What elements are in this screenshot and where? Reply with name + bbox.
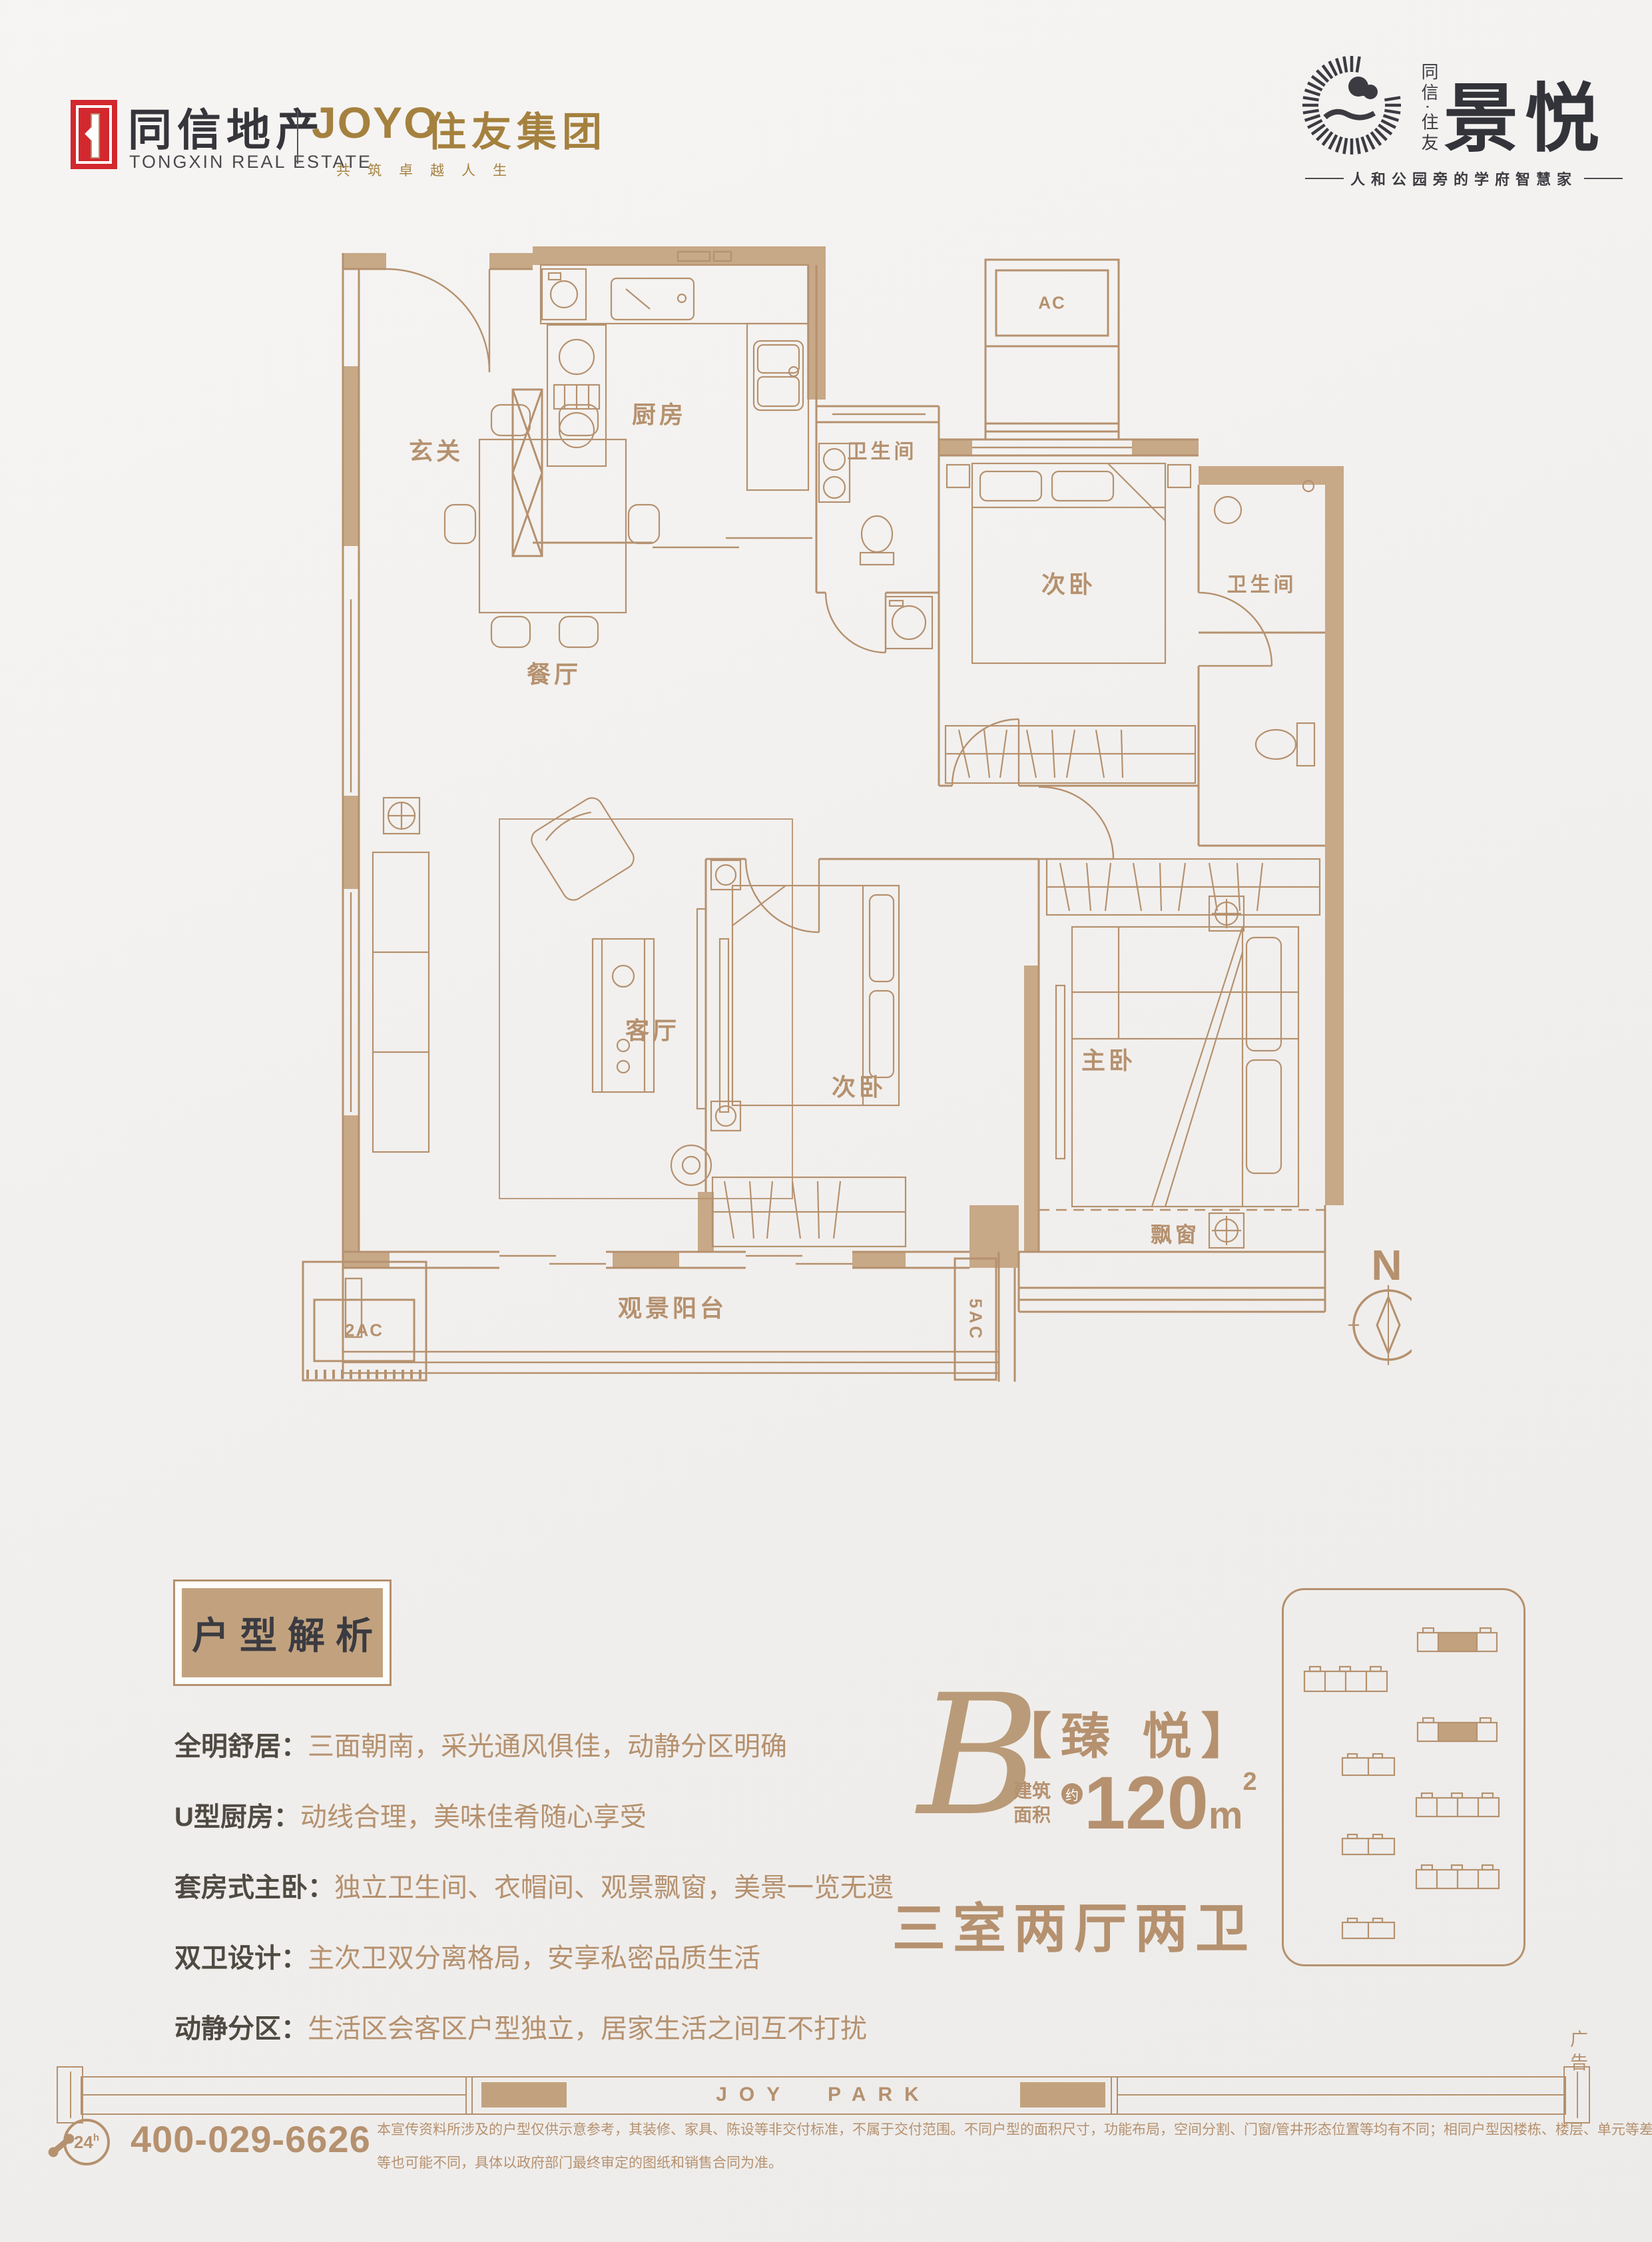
ad-vertical-label: 广告 [1565, 2030, 1591, 2076]
unit-approx-badge: 约 [1061, 1783, 1083, 1805]
building-highlighted [1418, 1628, 1497, 1651]
room-label-entry: 玄关 [409, 432, 463, 467]
furniture [373, 252, 1412, 1365]
scalebar-block-right [1020, 2082, 1105, 2107]
analysis-item-text: 独立卫生间、衣帽间、观景飘窗，美景一览无遗 [334, 1873, 894, 1902]
tagline-line-right [1584, 178, 1623, 179]
analysis-item: 动静分区：生活区会客区户型独立，居家生活之间互不打扰 [174, 2007, 867, 2046]
building-outline [1342, 1754, 1394, 1775]
analysis-item-label: 全明舒居： [174, 1732, 308, 1761]
analysis-item: 双卫设计：主次卫双分离格局，安享私密品质生活 [174, 1936, 760, 1975]
area-superscript: 2 [1242, 1768, 1256, 1796]
phone-24h-badge: 24h [63, 2119, 110, 2165]
building-outline [1416, 1865, 1499, 1888]
analysis-title: 户型解析 [192, 1606, 384, 1660]
unit-name: 【臻 悦】 [1002, 1697, 1260, 1768]
unit-layout: 三室两厅两卫 [892, 1886, 1256, 1963]
ac-label-right: 5AC [965, 1298, 986, 1341]
room-label-bedroom2-mid: 次卧 [832, 1068, 886, 1103]
area-number: 120 [1084, 1761, 1209, 1844]
building-outline [1342, 1918, 1394, 1938]
floorplan: 玄关 厨房 卫生间 次卧 卫生间 餐厅 客厅 次卧 主卧 飘窗 观景阳台 AC … [280, 220, 1412, 1445]
partner-name-cn: 住友集团 [426, 100, 607, 158]
room-label-balcony: 观景阳台 [618, 1289, 727, 1324]
unit-area-value: 120m2 [1084, 1766, 1257, 1840]
room-label-living: 客厅 [625, 1011, 680, 1046]
analysis-item: 全明舒居：三面朝南，采光通风俱佳，动静分区明确 [174, 1725, 787, 1763]
disclaimer-line2: 等也可能不同，具体以政府部门最终审定的图纸和销售合同为准。 [377, 2152, 1609, 2172]
analysis-item-text: 生活区会客区户型独立，居家生活之间互不打扰 [308, 2014, 867, 2044]
compass-north-label: N [1371, 1241, 1405, 1290]
site-plan [1282, 1588, 1525, 1966]
tagline-line-left [1305, 178, 1344, 179]
scalebar-left-cap [57, 2066, 83, 2123]
room-label-bath1: 卫生间 [848, 435, 918, 464]
area-unit: m [1209, 1794, 1243, 1837]
badge-24: 24 [74, 2132, 93, 2153]
analysis-item-text: 动线合理，美味佳肴随心享受 [300, 1803, 647, 1832]
disclaimer-line1: 本宣传资料所涉及的户型仅供示意参考，其装修、家具、陈设等非交付标准，不属于交付范… [377, 2119, 1609, 2139]
project-name: 景悦 [1444, 59, 1606, 166]
analysis-title-box: 户型解析 [173, 1579, 392, 1686]
unit-area-caption-2: 面积 [1013, 1803, 1051, 1827]
unit-area-caption: 建筑 面积 [1013, 1779, 1051, 1827]
analysis-item: U型厨房：动线合理，美味佳肴随心享受 [174, 1795, 647, 1834]
project-tagline: 人和公园旁的学府智慧家 [1350, 168, 1577, 189]
unit-area-caption-1: 建筑 [1013, 1779, 1051, 1803]
room-label-master: 主卧 [1081, 1041, 1136, 1076]
tongxin-logo-icon [71, 100, 117, 169]
room-label-dining: 餐厅 [527, 655, 581, 690]
phone-number: 400-029-6626 [131, 2117, 371, 2161]
analysis-item: 套房式主卧：独立卫生间、衣帽间、观景飘窗，美景一览无遗 [174, 1866, 894, 1904]
partner-logo-joyo: JOYO [312, 97, 439, 148]
building-outline [1342, 1834, 1394, 1854]
room-label-baywindow: 飘窗 [1151, 1218, 1200, 1249]
badge-h: h [93, 2132, 99, 2143]
room-label-kitchen: 厨房 [632, 396, 687, 430]
project-tagline-row: 人和公园旁的学府智慧家 [1305, 168, 1585, 189]
building-outline [1304, 1667, 1387, 1691]
analysis-item-text: 主次卫双分离格局，安享私密品质生活 [308, 1944, 760, 1973]
building-outline [1416, 1793, 1499, 1817]
brand-name-cn: 同信地产 [128, 95, 325, 158]
floorplan-drawing [280, 220, 1412, 1445]
analysis-item-label: 动静分区： [174, 2014, 308, 2044]
jingyue-sunburst-icon [1300, 53, 1404, 157]
site-plan-drawing [1284, 1590, 1519, 1960]
room-label-bath2: 卫生间 [1227, 568, 1297, 597]
room-label-bedroom2-top: 次卧 [1041, 565, 1096, 600]
vertical-brand: 同信·住友 [1417, 63, 1442, 156]
building-highlighted [1418, 1718, 1497, 1741]
partner-tagline: 共筑卓越人生 [336, 160, 524, 180]
scalebar: JOY PARK [81, 2076, 1566, 2115]
ac-label-top: AC [1038, 293, 1066, 314]
analysis-item-label: 双卫设计： [174, 1944, 308, 1973]
header-divider [297, 111, 298, 164]
analysis-item-label: 套房式主卧： [174, 1873, 334, 1902]
ac-label-left: 2AC [345, 1320, 384, 1341]
analysis-item-label: U型厨房： [174, 1803, 300, 1832]
analysis-item-text: 三面朝南，采光通风俱佳，动静分区明确 [308, 1732, 787, 1761]
